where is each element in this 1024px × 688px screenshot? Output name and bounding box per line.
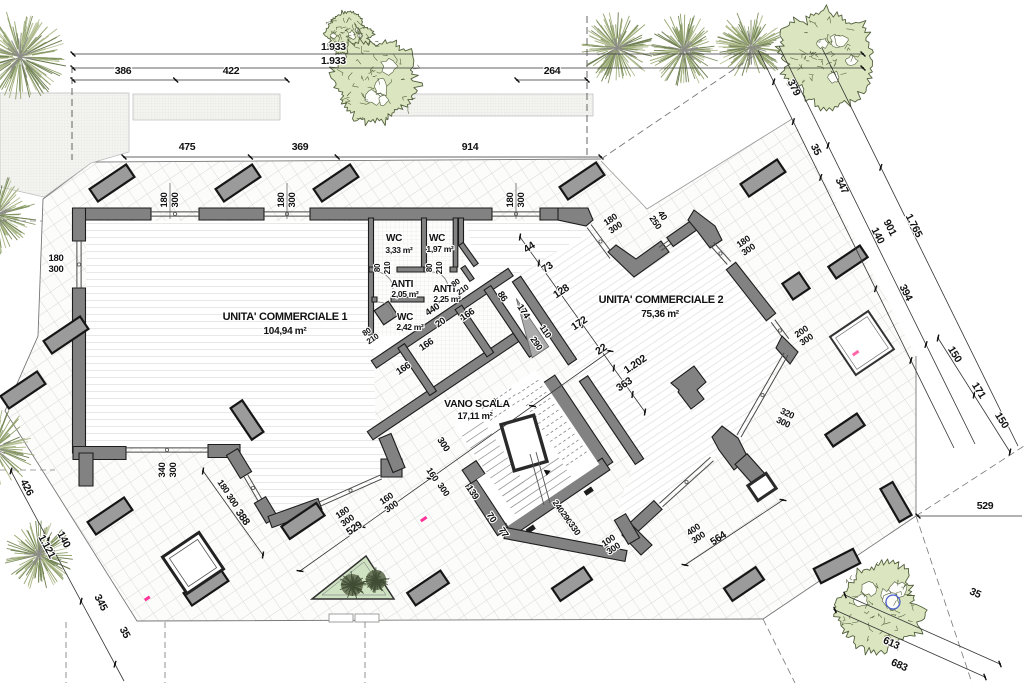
svg-text:WC: WC xyxy=(429,233,445,244)
svg-text:264: 264 xyxy=(544,65,561,77)
svg-text:104,94 m²: 104,94 m² xyxy=(264,326,308,337)
svg-text:529: 529 xyxy=(977,500,994,512)
svg-text:2,42 m²: 2,42 m² xyxy=(396,322,424,332)
svg-text:300: 300 xyxy=(49,264,64,275)
svg-text:1.933: 1.933 xyxy=(321,55,346,67)
svg-text:1.933: 1.933 xyxy=(321,41,346,53)
svg-text:422: 422 xyxy=(223,65,240,77)
svg-text:300: 300 xyxy=(170,193,181,208)
svg-text:914: 914 xyxy=(462,141,479,153)
svg-text:180: 180 xyxy=(505,193,516,208)
svg-text:80: 80 xyxy=(373,263,382,272)
svg-text:WC: WC xyxy=(386,233,402,244)
svg-text:2,05 m²: 2,05 m² xyxy=(391,289,419,299)
svg-text:UNITA' COMMERCIALE 2: UNITA' COMMERCIALE 2 xyxy=(599,294,724,306)
svg-text:210: 210 xyxy=(383,261,392,274)
svg-text:210: 210 xyxy=(435,261,444,274)
svg-text:2,25 m²: 2,25 m² xyxy=(433,294,461,304)
svg-text:80: 80 xyxy=(425,263,434,272)
svg-text:17,11 m²: 17,11 m² xyxy=(457,411,492,422)
svg-text:3,33 m²: 3,33 m² xyxy=(385,245,413,255)
svg-text:300: 300 xyxy=(516,193,527,208)
svg-text:180: 180 xyxy=(276,193,287,208)
svg-text:180: 180 xyxy=(49,253,64,264)
svg-text:369: 369 xyxy=(292,141,309,153)
svg-text:180: 180 xyxy=(159,193,170,208)
svg-text:UNITA' COMMERCIALE 1: UNITA' COMMERCIALE 1 xyxy=(223,311,348,323)
svg-text:300: 300 xyxy=(287,193,298,208)
svg-text:340: 340 xyxy=(157,463,168,478)
svg-text:VANO SCALA: VANO SCALA xyxy=(444,398,510,410)
svg-text:300: 300 xyxy=(168,463,179,478)
svg-text:75,36 m²: 75,36 m² xyxy=(641,309,680,320)
svg-text:1,97 m²: 1,97 m² xyxy=(426,244,454,254)
svg-text:386: 386 xyxy=(115,65,132,77)
svg-text:475: 475 xyxy=(179,141,196,153)
